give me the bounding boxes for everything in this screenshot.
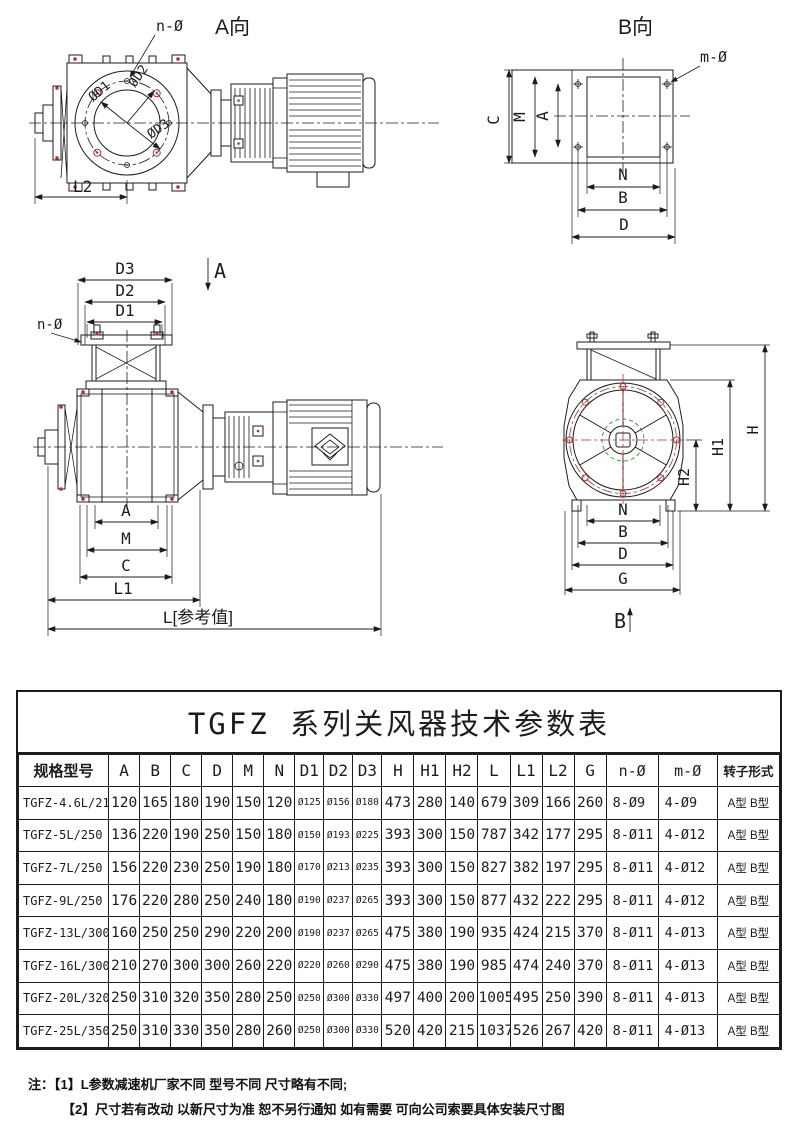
value-cell: 8-Ø11	[606, 852, 658, 885]
bolt-callout-label: m-Ø	[700, 48, 727, 66]
value-cell: 220	[233, 917, 264, 950]
value-cell: 526	[510, 1015, 542, 1048]
value-cell: 260	[233, 949, 264, 982]
dim-label-d1: D1	[115, 301, 134, 320]
dim-label-l-ref: L[参考值]	[163, 608, 233, 627]
rotor-type-cell: A型 B型	[717, 949, 779, 982]
value-cell: 380	[414, 917, 446, 950]
value-cell: 190	[202, 787, 233, 820]
value-cell: 150	[446, 819, 478, 852]
value-cell: Ø193	[324, 819, 353, 852]
value-cell: 4-Ø12	[658, 819, 717, 852]
value-cell: 176	[109, 884, 140, 917]
value-cell: 150	[446, 852, 478, 885]
value-cell: 4-Ø12	[658, 852, 717, 885]
value-cell: 260	[264, 1015, 295, 1048]
value-cell: 300	[414, 884, 446, 917]
bolt-callout-label: n-Ø	[156, 17, 183, 35]
value-cell: 280	[171, 884, 202, 917]
value-cell: 4-Ø13	[658, 982, 717, 1015]
model-cell: TGFZ-25L/350	[19, 1015, 109, 1048]
column-header: C	[171, 755, 202, 787]
value-cell: 260	[574, 787, 606, 820]
value-cell: 8-Ø11	[606, 1015, 658, 1048]
dim-label-b: B	[618, 188, 628, 207]
rotor-type-cell: A型 B型	[717, 819, 779, 852]
value-cell: 8-Ø11	[606, 982, 658, 1015]
value-cell: 8-Ø11	[606, 917, 658, 950]
value-cell: 250	[109, 982, 140, 1015]
model-cell: TGFZ-16L/300	[19, 949, 109, 982]
value-cell: 190	[171, 819, 202, 852]
value-cell: 270	[140, 949, 171, 982]
value-cell: 4-Ø13	[658, 917, 717, 950]
dim-label-d2: D2	[115, 281, 134, 300]
note-label: 注：	[28, 1077, 54, 1092]
value-cell: 156	[109, 852, 140, 885]
column-header: L	[478, 755, 510, 787]
value-cell: 220	[140, 884, 171, 917]
column-header: D1	[295, 755, 324, 787]
rotor-type-cell: A型 B型	[717, 787, 779, 820]
column-header: n-Ø	[606, 755, 658, 787]
value-cell: 180	[171, 787, 202, 820]
rotor-type-cell: A型 B型	[717, 852, 779, 885]
column-header: D	[202, 755, 233, 787]
value-cell: 150	[233, 787, 264, 820]
column-header: H2	[446, 755, 478, 787]
dim-label-l2: L2	[73, 177, 92, 196]
value-cell: 475	[382, 917, 414, 950]
value-cell: 250	[202, 819, 233, 852]
value-cell: 935	[478, 917, 510, 950]
rotor-type-cell: A型 B型	[717, 884, 779, 917]
value-cell: 180	[264, 852, 295, 885]
column-header: L2	[542, 755, 574, 787]
dim-label-n: N	[618, 500, 628, 519]
value-cell: 4-Ø9	[658, 787, 717, 820]
dim-label-m: M	[121, 529, 131, 548]
value-cell: 495	[510, 982, 542, 1015]
value-cell: 350	[202, 1015, 233, 1048]
value-cell: 420	[414, 1015, 446, 1048]
column-header: H1	[414, 755, 446, 787]
section-marker-b: B	[614, 609, 626, 633]
dim-label-g: G	[618, 569, 628, 588]
model-cell: TGFZ-20L/320	[19, 982, 109, 1015]
value-cell: 497	[382, 982, 414, 1015]
value-cell: 295	[574, 852, 606, 885]
value-cell: 310	[140, 982, 171, 1015]
value-cell: 320	[171, 982, 202, 1015]
model-cell: TGFZ-7L/250	[19, 852, 109, 885]
value-cell: 160	[109, 917, 140, 950]
value-cell: 4-Ø13	[658, 1015, 717, 1048]
dim-label-h1: H1	[709, 438, 727, 456]
value-cell: 220	[140, 819, 171, 852]
rotor-type-cell: A型 B型	[717, 917, 779, 950]
value-cell: 310	[140, 1015, 171, 1048]
value-cell: 190	[233, 852, 264, 885]
rotor-type-cell: A型 B型	[717, 1015, 779, 1048]
b-view-drawing: B向 m-Ø C M A N B D	[450, 8, 795, 258]
value-cell: 474	[510, 949, 542, 982]
value-cell: 120	[264, 787, 295, 820]
value-cell: 200	[446, 982, 478, 1015]
value-cell: 300	[171, 949, 202, 982]
value-cell: 393	[382, 852, 414, 885]
value-cell: 475	[382, 949, 414, 982]
value-cell: 222	[542, 884, 574, 917]
value-cell: Ø265	[353, 917, 382, 950]
value-cell: 250	[171, 917, 202, 950]
dim-label-d3: D3	[115, 259, 134, 278]
value-cell: 250	[542, 982, 574, 1015]
dim-label-a: A	[121, 501, 131, 520]
value-cell: 180	[264, 819, 295, 852]
value-cell: 380	[414, 949, 446, 982]
value-cell: 250	[202, 884, 233, 917]
value-cell: 473	[382, 787, 414, 820]
value-cell: 177	[542, 819, 574, 852]
column-header: L1	[510, 755, 542, 787]
value-cell: Ø190	[295, 917, 324, 950]
value-cell: 250	[264, 982, 295, 1015]
value-cell: Ø213	[324, 852, 353, 885]
table-row: TGFZ-7L/250156220230250190180Ø170Ø213Ø23…	[19, 852, 780, 885]
value-cell: Ø225	[353, 819, 382, 852]
value-cell: Ø300	[324, 982, 353, 1015]
front-view-drawing: D3 D2 D1 A n-Ø	[15, 250, 455, 644]
value-cell: 827	[478, 852, 510, 885]
dim-label-m: M	[510, 112, 529, 122]
value-cell: 370	[574, 949, 606, 982]
table-row: TGFZ-5L/250136220190250150180Ø150Ø193Ø22…	[19, 819, 780, 852]
note-line-2: 【2】尺寸若有改动 以新尺寸为准 恕不另行通知 如有需要 可向公司索要具体安装尺…	[28, 1097, 565, 1122]
value-cell: 200	[264, 917, 295, 950]
value-cell: 420	[574, 1015, 606, 1048]
value-cell: 1005	[478, 982, 510, 1015]
value-cell: 280	[414, 787, 446, 820]
value-cell: 220	[264, 949, 295, 982]
column-header: H	[382, 755, 414, 787]
value-cell: 8-Ø11	[606, 949, 658, 982]
value-cell: 4-Ø13	[658, 949, 717, 982]
value-cell: 1037	[478, 1015, 510, 1048]
value-cell: 210	[109, 949, 140, 982]
value-cell: 400	[414, 982, 446, 1015]
value-cell: 150	[446, 884, 478, 917]
table-body: TGFZ-4.6L/210120165180190150120Ø125Ø156Ø…	[19, 787, 780, 1048]
value-cell: 370	[574, 917, 606, 950]
value-cell: 390	[574, 982, 606, 1015]
dim-label-h: H	[744, 425, 762, 434]
column-header: D3	[353, 755, 382, 787]
dim-label-d: D	[618, 544, 628, 563]
value-cell: 280	[233, 982, 264, 1015]
model-cell: TGFZ-5L/250	[19, 819, 109, 852]
value-cell: Ø330	[353, 982, 382, 1015]
value-cell: 290	[202, 917, 233, 950]
table-row: TGFZ-4.6L/210120165180190150120Ø125Ø156Ø…	[19, 787, 780, 820]
value-cell: 4-Ø12	[658, 884, 717, 917]
value-cell: Ø250	[295, 982, 324, 1015]
value-cell: Ø190	[295, 884, 324, 917]
column-header: m-Ø	[658, 755, 717, 787]
value-cell: Ø125	[295, 787, 324, 820]
value-cell: 150	[233, 819, 264, 852]
value-cell: 350	[202, 982, 233, 1015]
dim-label-n: N	[618, 165, 628, 184]
note-1-text: 【1】L参数减速机厂家不同 型号不同 尺寸略有不同;	[54, 1077, 347, 1092]
column-header: M	[233, 755, 264, 787]
value-cell: 295	[574, 819, 606, 852]
table-row: TGFZ-16L/300210270300300260220Ø220Ø260Ø2…	[19, 949, 780, 982]
column-header: 规格型号	[19, 755, 109, 787]
value-cell: 250	[109, 1015, 140, 1048]
note-line-1: 注：【1】L参数减速机厂家不同 型号不同 尺寸略有不同;	[28, 1072, 565, 1097]
column-header: A	[109, 755, 140, 787]
table-row: TGFZ-9L/250176220280250240180Ø190Ø237Ø26…	[19, 884, 780, 917]
value-cell: 240	[233, 884, 264, 917]
view-a-title: A向	[215, 16, 250, 39]
value-cell: 342	[510, 819, 542, 852]
header-row: 规格型号ABCDMND1D2D3HH1H2LL1L2Gn-Øm-Ø转子形式	[19, 755, 780, 787]
table-row: TGFZ-20L/320250310320350280250Ø250Ø300Ø3…	[19, 982, 780, 1015]
bolt-callout-label: n-Ø	[37, 317, 63, 333]
value-cell: 393	[382, 819, 414, 852]
parameter-table: TGFZ 系列关风器技术参数表 规格型号ABCDMND1D2D3HH1H2LL1…	[16, 690, 782, 1050]
value-cell: Ø237	[324, 884, 353, 917]
footnotes: 注：【1】L参数减速机厂家不同 型号不同 尺寸略有不同; 【2】尺寸若有改动 以…	[28, 1072, 565, 1122]
side-view-drawing: H2 H1 H N B D G B	[520, 300, 795, 640]
a-view-drawing: A向 ØD1 ØD2 ØD3 n-Ø	[15, 8, 445, 246]
value-cell: 190	[446, 949, 478, 982]
value-cell: 136	[109, 819, 140, 852]
value-cell: 220	[140, 852, 171, 885]
value-cell: Ø170	[295, 852, 324, 885]
dim-label-h2: H2	[675, 468, 693, 486]
value-cell: 165	[140, 787, 171, 820]
value-cell: 382	[510, 852, 542, 885]
value-cell: Ø330	[353, 1015, 382, 1048]
value-cell: 120	[109, 787, 140, 820]
value-cell: 309	[510, 787, 542, 820]
value-cell: Ø250	[295, 1015, 324, 1048]
value-cell: 8-Ø11	[606, 884, 658, 917]
value-cell: 8-Ø9	[606, 787, 658, 820]
dim-label-dia1: ØD1	[86, 78, 114, 105]
model-cell: TGFZ-13L/300	[19, 917, 109, 950]
dim-label-a: A	[533, 111, 552, 121]
column-header: G	[574, 755, 606, 787]
value-cell: Ø180	[353, 787, 382, 820]
value-cell: 280	[233, 1015, 264, 1048]
value-cell: 424	[510, 917, 542, 950]
value-cell: Ø290	[353, 949, 382, 982]
value-cell: 393	[382, 884, 414, 917]
value-cell: 250	[202, 852, 233, 885]
value-cell: 985	[478, 949, 510, 982]
value-cell: 877	[478, 884, 510, 917]
value-cell: 8-Ø11	[606, 819, 658, 852]
value-cell: 230	[171, 852, 202, 885]
value-cell: 300	[202, 949, 233, 982]
column-header: 转子形式	[717, 755, 779, 787]
value-cell: Ø237	[324, 917, 353, 950]
value-cell: 267	[542, 1015, 574, 1048]
dim-label-d: D	[619, 215, 629, 234]
value-cell: Ø265	[353, 884, 382, 917]
value-cell: 300	[414, 819, 446, 852]
dim-label-c: C	[121, 556, 131, 575]
column-header: B	[140, 755, 171, 787]
value-cell: 140	[446, 787, 478, 820]
value-cell: 190	[446, 917, 478, 950]
value-cell: Ø260	[324, 949, 353, 982]
rotor-type-cell: A型 B型	[717, 982, 779, 1015]
value-cell: 295	[574, 884, 606, 917]
model-cell: TGFZ-4.6L/210	[19, 787, 109, 820]
param-table: 规格型号ABCDMND1D2D3HH1H2LL1L2Gn-Øm-Ø转子形式 TG…	[18, 754, 780, 1048]
dim-label-c: C	[484, 115, 503, 125]
value-cell: 180	[264, 884, 295, 917]
value-cell: 250	[140, 917, 171, 950]
value-cell: Ø300	[324, 1015, 353, 1048]
value-cell: 240	[542, 949, 574, 982]
value-cell: 215	[542, 917, 574, 950]
model-cell: TGFZ-9L/250	[19, 884, 109, 917]
dim-label-b: B	[618, 522, 628, 541]
value-cell: 300	[414, 852, 446, 885]
value-cell: Ø220	[295, 949, 324, 982]
value-cell: 787	[478, 819, 510, 852]
column-header: N	[264, 755, 295, 787]
value-cell: 215	[446, 1015, 478, 1048]
value-cell: 432	[510, 884, 542, 917]
dim-label-l1: L1	[113, 579, 132, 598]
section-marker-a: A	[214, 259, 226, 283]
value-cell: 166	[542, 787, 574, 820]
view-b-title: B向	[618, 16, 653, 39]
table-row: TGFZ-25L/350250310330350280260Ø250Ø300Ø3…	[19, 1015, 780, 1048]
value-cell: Ø150	[295, 819, 324, 852]
value-cell: Ø235	[353, 852, 382, 885]
value-cell: 330	[171, 1015, 202, 1048]
value-cell: 197	[542, 852, 574, 885]
table-title: TGFZ 系列关风器技术参数表	[18, 692, 780, 754]
value-cell: 679	[478, 787, 510, 820]
value-cell: 520	[382, 1015, 414, 1048]
table-row: TGFZ-13L/300160250250290220200Ø190Ø237Ø2…	[19, 917, 780, 950]
value-cell: Ø156	[324, 787, 353, 820]
column-header: D2	[324, 755, 353, 787]
